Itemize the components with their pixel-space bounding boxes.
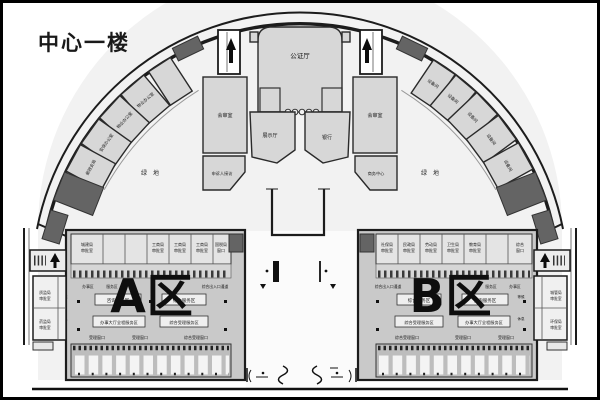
micro-label: 受理窗口 xyxy=(132,334,148,340)
elevator-lobby-left xyxy=(30,250,66,271)
micro-label: 综合出入口通道 xyxy=(202,284,229,289)
edge-room-label: 审批室 xyxy=(39,325,51,330)
floor-plan-page: 物业办公室 物业办公室 安保办公室 邮政支局 设备间 设备间 设备间 设备间 设… xyxy=(0,0,600,400)
edge-rooms-left: 质监局 审批室 药监局 审批室 xyxy=(33,276,66,350)
svg-text:审批室: 审批室 xyxy=(196,247,208,253)
svg-text:审批室: 审批室 xyxy=(381,247,393,253)
svg-text:教育局: 教育局 xyxy=(469,241,481,247)
room-bank-label: 银行 xyxy=(322,134,332,141)
edge-room-label: 环保局 xyxy=(550,319,562,324)
edge-rooms-right: 城管局 审批室 环保局 审批室 xyxy=(534,276,567,350)
zone-b-label: B区 xyxy=(409,269,492,323)
floor-plan-svg: 物业办公室 物业办公室 安保办公室 邮政支局 设备间 设备间 设备间 设备间 设… xyxy=(0,0,600,400)
svg-text:审批室: 审批室 xyxy=(447,247,459,253)
micro-label: 综合受理窗口 xyxy=(395,334,419,340)
room-review-right-label: 会审室 xyxy=(367,112,382,119)
svg-text:国税局: 国税局 xyxy=(215,241,227,247)
zone-a-label: A区 xyxy=(110,269,194,323)
micro-label: 综合出入口通道 xyxy=(375,284,402,289)
main-hall xyxy=(258,27,342,112)
svg-text:审批室: 审批室 xyxy=(469,247,481,253)
edge-room-label: 审批室 xyxy=(550,296,562,301)
edge-room-label: 城管局 xyxy=(550,290,562,295)
block-a-dark-cell xyxy=(229,234,243,252)
svg-text:劳动局: 劳动局 xyxy=(425,241,437,247)
svg-text:窗口: 窗口 xyxy=(217,247,225,253)
green-area-right-label: 绿地 xyxy=(421,169,445,177)
room-review-left-label: 会审室 xyxy=(217,112,232,119)
room-exhibition-label: 展示厅 xyxy=(262,133,277,139)
micro-label: 办事区 xyxy=(82,284,94,289)
svg-text:卫生局: 卫生局 xyxy=(447,241,459,247)
micro-label: 受理窗口 xyxy=(455,334,471,340)
svg-text:民政局: 民政局 xyxy=(403,241,415,247)
svg-text:城建局: 城建局 xyxy=(81,241,93,247)
micro-label: 等候 xyxy=(518,294,526,299)
green-area-left-label: 绿地 xyxy=(141,169,165,177)
svg-text:综合: 综合 xyxy=(516,241,524,247)
block-b: 社保局审批室 民政局审批室 劳动局审批室 卫生局审批室 教育局审批室 综合窗口 … xyxy=(358,230,537,380)
central-corridor xyxy=(246,231,357,388)
edge-room-label: 审批室 xyxy=(550,325,562,330)
hall-side-notch-right xyxy=(342,32,350,42)
micro-label: 办事区 xyxy=(509,284,521,289)
page-title: 中心一楼 xyxy=(38,31,130,55)
block-a: 城建局审批室 工商局审批室 工商局审批室 工商局审批室 国税局窗口 办事区 服务… xyxy=(66,230,245,380)
stairwell-left xyxy=(218,30,240,74)
svg-text:审批室: 审批室 xyxy=(403,247,415,253)
micro-label: 休息 xyxy=(518,316,526,321)
svg-text:工商局: 工商局 xyxy=(174,241,186,247)
block-b-dark-cell xyxy=(360,234,374,252)
hall-side-notch-left xyxy=(250,32,258,42)
room-business-center-label: 商务中心 xyxy=(368,170,386,177)
micro-label: 受理窗口 xyxy=(89,334,105,340)
stairwell-right xyxy=(360,30,382,74)
elevator-lobby-right xyxy=(534,250,570,271)
svg-text:社保局: 社保局 xyxy=(381,241,393,247)
svg-text:工商局: 工商局 xyxy=(196,241,208,247)
svg-text:审批室: 审批室 xyxy=(152,247,164,253)
svg-text:审批室: 审批室 xyxy=(174,247,186,253)
svg-text:工商局: 工商局 xyxy=(152,241,164,247)
micro-label: 综合受理窗口 xyxy=(184,334,208,340)
room-petition-label: 申诉人接访 xyxy=(212,170,233,177)
edge-room-label: 质监局 xyxy=(39,290,51,295)
micro-label: 受理窗口 xyxy=(498,334,514,340)
svg-text:审批室: 审批室 xyxy=(81,247,93,253)
svg-text:窗口: 窗口 xyxy=(516,247,524,253)
edge-room-label: 审批室 xyxy=(39,296,51,301)
edge-room-label: 药监局 xyxy=(39,319,51,324)
svg-text:审批室: 审批室 xyxy=(425,247,437,253)
main-hall-label: 公证厅 xyxy=(290,52,310,60)
